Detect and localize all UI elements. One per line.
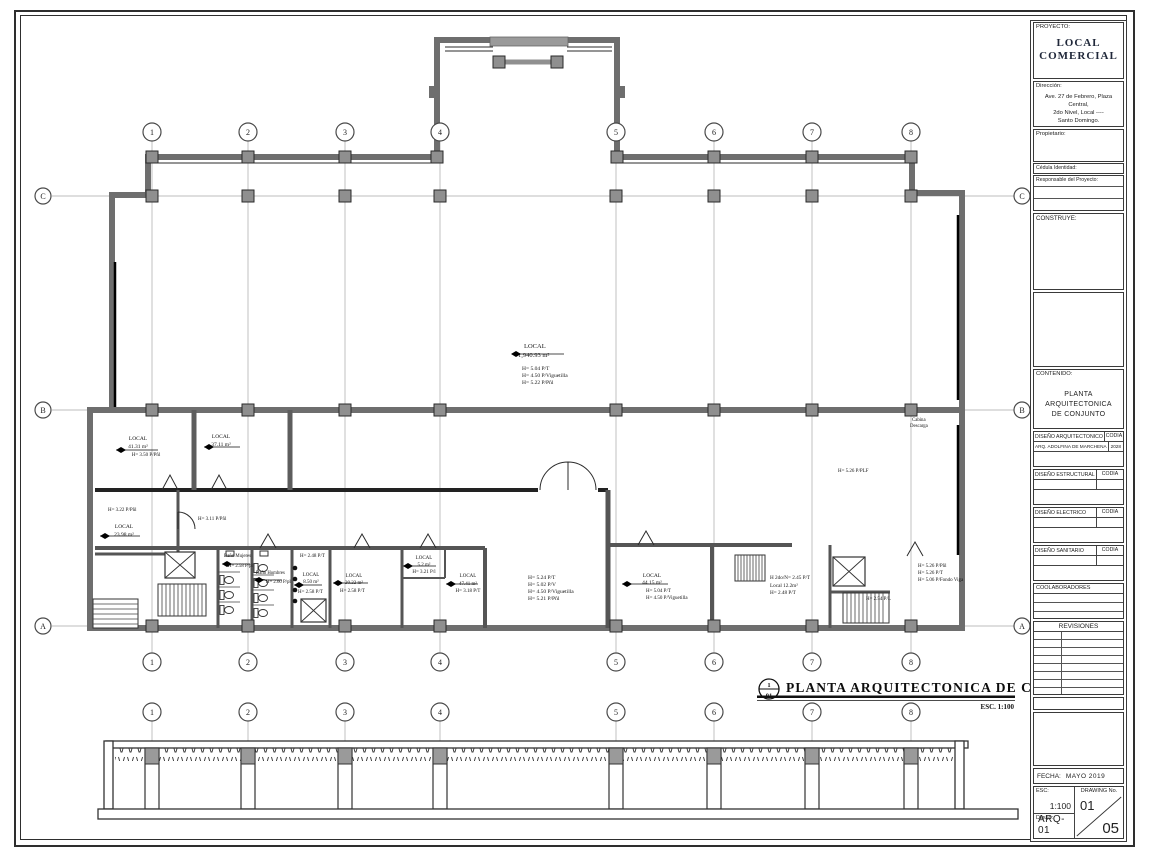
column bbox=[905, 190, 917, 202]
label-l4415-h1: H= 5.04 P/T bbox=[646, 589, 671, 594]
label-l23-area: 23.98 m² bbox=[114, 532, 134, 538]
revision-row bbox=[1034, 680, 1123, 688]
contenido-line2: DE CONJUNTO bbox=[1034, 410, 1123, 420]
section-end-wall-left bbox=[104, 741, 113, 809]
column bbox=[708, 151, 720, 163]
column bbox=[339, 404, 351, 416]
floor-plan-canvas: LOCAL 1,940.93 m² H= 5.04 P/T H= 4.50 P/… bbox=[0, 0, 1030, 859]
wall-notch bbox=[617, 86, 625, 98]
propietario-label: Propietario: bbox=[1034, 130, 1123, 138]
tb-empty-box2 bbox=[1033, 712, 1124, 766]
grid-bubble-label: 5 bbox=[614, 128, 618, 137]
section-column-capital bbox=[241, 748, 255, 764]
partition bbox=[95, 490, 178, 554]
column bbox=[242, 620, 254, 632]
grid-bubble-label: 6 bbox=[712, 708, 716, 717]
revision-row bbox=[1034, 688, 1123, 695]
elevator-shaft bbox=[301, 599, 326, 622]
tb-proyecto: PROYECTO: LOCAL COMERCIAL bbox=[1033, 22, 1124, 79]
tb-construye: CONSTRUYE: bbox=[1033, 213, 1124, 290]
label-l2022-area: 20.22 m² bbox=[345, 580, 363, 586]
label-l4741: LOCAL bbox=[460, 574, 477, 579]
elevator-shaft bbox=[165, 552, 195, 578]
grid-bubble-row-left: C B A bbox=[35, 188, 51, 634]
drawing-number-cell: DRAWING No. 01 05 bbox=[1075, 787, 1123, 838]
codia-label: CODIA bbox=[1104, 432, 1123, 441]
grid-bubble-label: 6 bbox=[712, 128, 716, 137]
sheet-count: 05 bbox=[1102, 820, 1119, 837]
esc-value: 1:100 bbox=[1050, 801, 1071, 811]
label-l41-area: 41.31 m² bbox=[128, 444, 148, 450]
section-column-capital bbox=[904, 748, 918, 764]
label-h526: H= 5.26 P/PLF bbox=[838, 469, 869, 474]
empty-cell bbox=[1096, 518, 1123, 527]
stair bbox=[93, 599, 138, 628]
column bbox=[146, 151, 158, 163]
project-name-line2: COMERCIAL bbox=[1034, 50, 1123, 63]
building-outline bbox=[90, 37, 962, 628]
revision-row bbox=[1034, 656, 1123, 664]
detail-reference-top: 1 bbox=[767, 682, 770, 689]
tb-colaboradores: COOLABORADORES bbox=[1033, 583, 1124, 619]
label-l850: LOCAL bbox=[303, 573, 320, 578]
label-main-h1: H= 5.04 P/T bbox=[522, 366, 550, 372]
empty-cell bbox=[1096, 556, 1123, 565]
tb-cedula: Cédula Identidad: bbox=[1033, 163, 1124, 174]
cedula-label: Cédula Identidad: bbox=[1034, 164, 1123, 172]
label-bano-mujeres: Baño Mujeres bbox=[224, 554, 251, 559]
grid-bubble-label: 7 bbox=[810, 708, 814, 717]
diseno-arq-label: DISEÑO ARQUITECTONICO bbox=[1034, 434, 1104, 440]
stair bbox=[158, 584, 206, 616]
label-main-area: 1,940.93 m² bbox=[518, 352, 549, 359]
section-column-capital bbox=[707, 748, 721, 764]
grid-bubble-label: 4 bbox=[438, 128, 442, 137]
section-column-capital bbox=[805, 748, 819, 764]
label-l37-area: 37.11 m² bbox=[211, 442, 231, 448]
label-l850-area: 8.50 m² bbox=[303, 579, 319, 585]
label-bano-mujeres-h: H= 2.58 P/pl bbox=[228, 564, 253, 569]
column bbox=[339, 620, 351, 632]
revisiones-label: REVISIONES bbox=[1034, 622, 1123, 632]
empty-cell bbox=[1096, 480, 1123, 489]
label-l12-h1: H 2do/N= 2.45 P/T bbox=[770, 575, 811, 581]
grid-bubble-col-bottom: 1 2 3 4 5 6 7 8 bbox=[143, 653, 920, 671]
label-l4415-h2: H= 4.50 P/Viguetilla bbox=[646, 596, 688, 601]
grid-bubble-row-right: C B A bbox=[1014, 188, 1030, 634]
column bbox=[242, 151, 254, 163]
fecha-value: MAYO 2019 bbox=[1066, 773, 1105, 780]
column bbox=[708, 404, 720, 416]
column bbox=[708, 620, 720, 632]
column bbox=[806, 404, 818, 416]
grid-bubble-label: 7 bbox=[810, 128, 814, 137]
label-main-h2: H= 4.50 P/Viguetilla bbox=[522, 373, 568, 379]
tb-diseno-arquitectonico: DISEÑO ARQUITECTONICOCODIA ARQ. ADOLFINA… bbox=[1033, 431, 1124, 467]
grid-bubble-label: 3 bbox=[343, 128, 347, 137]
section-column-capital bbox=[609, 748, 623, 764]
section-column-capital bbox=[433, 748, 447, 764]
revision-row bbox=[1034, 648, 1123, 656]
responsable-label: Responsable del Proyecto: bbox=[1034, 176, 1123, 184]
column bbox=[242, 404, 254, 416]
column bbox=[339, 190, 351, 202]
title-underline bbox=[757, 696, 1015, 699]
door-arc bbox=[178, 512, 195, 529]
bump-canopy bbox=[490, 37, 568, 46]
column bbox=[905, 620, 917, 632]
label-l4741-area: 47.41 m² bbox=[459, 581, 477, 587]
column bbox=[146, 190, 158, 202]
diseno-estructural-label: DISEÑO ESTRUCTURAL bbox=[1034, 472, 1096, 478]
label-main-h3: H= 5.22 P/Pñl bbox=[522, 380, 554, 386]
label-l52-area: 5.2 m² bbox=[418, 562, 431, 568]
label-h248: H= 2.48 P/T bbox=[300, 554, 325, 559]
tb-empty-box bbox=[1033, 292, 1124, 367]
column bbox=[146, 404, 158, 416]
divider bbox=[1034, 611, 1123, 612]
arquitecto-name: ARQ. ADOLFINA DE MARCHENA bbox=[1034, 444, 1108, 449]
codia-label: CODIA bbox=[1096, 508, 1123, 517]
project-name-line1: LOCAL bbox=[1034, 37, 1123, 50]
tb-direccion: Dirección: Ave. 27 de Febrero, Plaza Cen… bbox=[1033, 81, 1124, 127]
column bbox=[806, 151, 818, 163]
grid-bubble-label: 4 bbox=[438, 658, 442, 667]
exterior-wall bbox=[90, 40, 962, 628]
tb-responsable: Responsable del Proyecto: bbox=[1033, 175, 1124, 211]
label-l4415-area: 44.15 m² bbox=[642, 580, 662, 586]
label-l37: LOCAL bbox=[212, 434, 231, 440]
column bbox=[611, 151, 623, 163]
column bbox=[146, 620, 158, 632]
column bbox=[493, 56, 505, 68]
grid-bubble-label: 5 bbox=[614, 658, 618, 667]
label-mid-h4: H= 5.21 P/Pñl bbox=[528, 596, 560, 602]
label-mid-h3: H= 4.50 P/Viguetilla bbox=[528, 589, 574, 595]
column bbox=[434, 620, 446, 632]
revision-row bbox=[1034, 632, 1123, 640]
label-mid-h2: H= 5.02 P/V bbox=[528, 582, 556, 588]
label-l12: Local 12.2m² bbox=[770, 583, 798, 589]
label-l23: LOCAL bbox=[115, 524, 134, 530]
column bbox=[551, 56, 563, 68]
title-block: PROYECTO: LOCAL COMERCIAL Dirección: Ave… bbox=[1030, 20, 1127, 842]
grid-bubble-label: A bbox=[1019, 622, 1025, 631]
direccion-label: Dirección: bbox=[1034, 82, 1123, 90]
label-descarga: Descarga bbox=[910, 424, 929, 429]
label-l12-h2: H= 2.48 P/T bbox=[770, 590, 797, 596]
colaboradores-label: COOLABORADORES bbox=[1034, 584, 1123, 594]
direccion-line3: Santo Domingo. bbox=[1034, 117, 1123, 125]
grid-leaders-elevation bbox=[152, 721, 911, 741]
grid-bubble-label: 8 bbox=[909, 708, 913, 717]
column bbox=[242, 190, 254, 202]
codia-label: CODIA bbox=[1096, 470, 1123, 479]
label-l4741-h: H= 3.18 P/T bbox=[456, 589, 481, 594]
label-bano-hombres: Baño Hombres bbox=[256, 571, 285, 576]
drawing-no-value: 01 bbox=[1080, 798, 1094, 813]
label-right-h3: H= 5.06 P/Fondo Viga bbox=[918, 578, 964, 583]
esc-label: ESC: bbox=[1036, 788, 1049, 794]
column bbox=[806, 190, 818, 202]
grid-bubble-label: 3 bbox=[343, 658, 347, 667]
grid-bubble-label: 2 bbox=[246, 658, 250, 667]
revision-row bbox=[1034, 664, 1123, 672]
wall-notch bbox=[429, 86, 437, 98]
label-cabina: Cabina bbox=[912, 418, 926, 423]
label-right-h2: H= 5.26 P/T bbox=[918, 571, 943, 576]
grid-bubble-elevation: 1 2 3 4 5 6 7 8 bbox=[143, 703, 920, 721]
dibujo-value: ARQ-01 bbox=[1038, 814, 1074, 836]
contenido-line1: PLANTA ARQUITECTONICA bbox=[1034, 390, 1123, 410]
label-h254: H= 2.54 P/L bbox=[866, 597, 891, 602]
label-l41: LOCAL bbox=[129, 436, 148, 442]
proyecto-label: PROYECTO: bbox=[1034, 23, 1123, 31]
doors bbox=[162, 462, 923, 556]
column bbox=[905, 404, 917, 416]
grid-bubble-label: B bbox=[1019, 406, 1024, 415]
grid-bubble-label: 2 bbox=[246, 128, 250, 137]
diseno-sanitario-label: DISEÑO SANITARIO bbox=[1034, 548, 1096, 554]
grid-bubble-label: C bbox=[40, 192, 45, 201]
label-h311: H= 3.11 P/Pñl bbox=[198, 517, 227, 522]
tb-esc-drawing: ESC: 1:100 Dibujo: ARQ-01 DRAWING No. 01… bbox=[1033, 786, 1124, 839]
column bbox=[806, 620, 818, 632]
label-bano-hombres-h: H= 2.60 P/pl bbox=[266, 580, 291, 585]
label-l4415: LOCAL bbox=[643, 573, 662, 579]
column bbox=[434, 190, 446, 202]
column bbox=[434, 404, 446, 416]
tb-contenido: CONTENIDO: PLANTA ARQUITECTONICA DE CONJ… bbox=[1033, 369, 1124, 429]
elevation-section: 1 2 3 4 5 6 7 8 bbox=[98, 703, 1018, 819]
tb-diseno-estructural: DISEÑO ESTRUCTURALCODIA bbox=[1033, 469, 1124, 505]
label-l2022: LOCAL bbox=[346, 574, 363, 579]
column bbox=[610, 404, 622, 416]
revision-row bbox=[1034, 640, 1123, 648]
grid-bubble-label: A bbox=[40, 622, 46, 631]
tb-fecha: FECHA: MAYO 2019 bbox=[1033, 768, 1124, 784]
column bbox=[431, 151, 443, 163]
diseno-electrico-label: DISEÑO ELECTRICO bbox=[1034, 510, 1096, 516]
tb-diseno-electrico: DISEÑO ELECTRICOCODIA bbox=[1033, 507, 1124, 543]
grid-bubble-label: C bbox=[1019, 192, 1024, 201]
label-right-h1: H= 5.26 P/Pñl bbox=[918, 564, 947, 569]
divider bbox=[1034, 198, 1123, 199]
direccion-line2: 2do Nivel, Local ---- bbox=[1034, 109, 1123, 117]
door-swing-marks bbox=[162, 475, 923, 556]
grid-bubble-label: 1 bbox=[150, 128, 154, 137]
partition bbox=[194, 410, 290, 490]
grid-bubble-label: 5 bbox=[614, 708, 618, 717]
contenido-label: CONTENIDO: bbox=[1034, 370, 1123, 378]
plan-title: PLANTA ARQUITECTONICA DE CONJUNTO bbox=[786, 680, 1030, 695]
elevator-shaft bbox=[833, 557, 865, 586]
tb-small-box bbox=[1033, 697, 1124, 710]
entry-double-door bbox=[540, 462, 596, 490]
label-mid-h1: H= 5.24 P/T bbox=[528, 575, 556, 581]
grid-bubble-label: 4 bbox=[438, 708, 442, 717]
label-l52-h: H= 3.21 P/l bbox=[412, 570, 436, 575]
label-l2022-h: H= 2.58 P/T bbox=[340, 589, 365, 594]
column bbox=[610, 620, 622, 632]
fecha-label: FECHA: bbox=[1037, 773, 1061, 780]
sink bbox=[260, 551, 268, 556]
codia-label: CODIA bbox=[1096, 546, 1123, 555]
stair bbox=[735, 555, 765, 581]
tb-propietario: Propietario: bbox=[1033, 129, 1124, 162]
label-h322: H= 3.22 P/Pñl bbox=[108, 508, 137, 513]
grid-bubble-label: 1 bbox=[150, 708, 154, 717]
plan-title-group: 1 01 PLANTA ARQUITECTONICA DE CONJUNTO E… bbox=[757, 679, 1030, 711]
esc-column: ESC: 1:100 Dibujo: ARQ-01 bbox=[1034, 787, 1075, 838]
grid-bubble-label: 7 bbox=[810, 658, 814, 667]
divider bbox=[1034, 186, 1123, 187]
section-end-wall-right bbox=[955, 741, 964, 809]
label-main-local: LOCAL bbox=[524, 343, 546, 350]
section-column-capital bbox=[145, 748, 159, 764]
drawing-sheet: LOCAL 1,940.93 m² H= 5.04 P/T H= 4.50 P/… bbox=[0, 0, 1149, 859]
column bbox=[905, 151, 917, 163]
section-column-capital bbox=[338, 748, 352, 764]
grid-bubble-label: 8 bbox=[909, 128, 913, 137]
divider bbox=[1034, 602, 1123, 603]
grid-bubble-col: 1 2 3 4 5 6 7 8 bbox=[143, 123, 920, 141]
grid-bubble-label: B bbox=[40, 406, 45, 415]
arquitecto-codia: 2028 bbox=[1108, 442, 1123, 451]
direccion-line1: Ave. 27 de Febrero, Plaza Central, bbox=[1034, 93, 1123, 109]
grid-bubble-label: 8 bbox=[909, 658, 913, 667]
tb-diseno-sanitario: DISEÑO SANITARIOCODIA bbox=[1033, 545, 1124, 581]
label-l41-h: H= 3.50 P/Pñl bbox=[132, 453, 161, 458]
tb-revisiones: REVISIONES bbox=[1033, 621, 1124, 695]
grid-bubble-label: 6 bbox=[712, 658, 716, 667]
column bbox=[610, 190, 622, 202]
section-beam bbox=[106, 741, 968, 748]
construye-label: CONSTRUYE: bbox=[1034, 214, 1123, 223]
plan-scale: ESC. 1:100 bbox=[981, 703, 1015, 711]
label-l52: LOCAL bbox=[416, 556, 433, 561]
grid-bubble-label: 1 bbox=[150, 658, 154, 667]
label-l850-h: H= 2.58 P/T bbox=[298, 590, 323, 595]
grid-bubble-label: 3 bbox=[343, 708, 347, 717]
section-base bbox=[98, 809, 1018, 819]
bump-glazing bbox=[445, 47, 612, 51]
revision-row bbox=[1034, 672, 1123, 680]
column bbox=[339, 151, 351, 163]
column bbox=[708, 190, 720, 202]
grid-bubble-label: 2 bbox=[246, 708, 250, 717]
